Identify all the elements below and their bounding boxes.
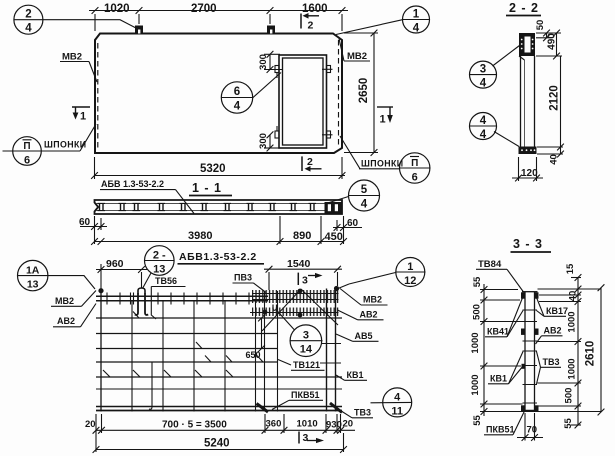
svg-text:3: 3 bbox=[303, 330, 309, 342]
svg-text:890: 890 bbox=[293, 230, 311, 242]
svg-text:2: 2 bbox=[308, 20, 314, 32]
svg-text:3: 3 bbox=[303, 432, 309, 444]
svg-text:1: 1 bbox=[380, 114, 386, 126]
svg-text:1А: 1А bbox=[26, 265, 40, 277]
svg-text:КВ1: КВ1 bbox=[490, 374, 507, 384]
svg-text:3 - 3: 3 - 3 bbox=[513, 237, 543, 251]
svg-text:2650: 2650 bbox=[358, 78, 370, 104]
svg-text:2 -: 2 - bbox=[153, 250, 166, 262]
svg-text:55: 55 bbox=[563, 418, 574, 429]
svg-text:50: 50 bbox=[535, 20, 546, 31]
svg-text:4: 4 bbox=[234, 101, 241, 113]
svg-text:120: 120 bbox=[521, 168, 538, 179]
svg-text:АБВ 1.3-53-2.2: АБВ 1.3-53-2.2 bbox=[101, 179, 164, 189]
svg-text:4: 4 bbox=[480, 115, 487, 127]
svg-text:13: 13 bbox=[27, 279, 39, 291]
svg-text:500: 500 bbox=[564, 388, 575, 404]
svg-text:14: 14 bbox=[300, 344, 313, 356]
svg-text:20: 20 bbox=[85, 419, 96, 430]
svg-text:360: 360 bbox=[266, 419, 282, 430]
svg-text:4: 4 bbox=[25, 23, 32, 35]
svg-text:1010: 1010 bbox=[297, 419, 318, 430]
svg-text:40: 40 bbox=[568, 291, 579, 302]
svg-text:АБВ1.3-53-2.2: АБВ1.3-53-2.2 bbox=[179, 251, 257, 263]
svg-text:40: 40 bbox=[549, 154, 560, 165]
svg-text:АВ2: АВ2 bbox=[57, 316, 75, 326]
svg-text:1600: 1600 bbox=[302, 3, 328, 15]
svg-text:3: 3 bbox=[480, 64, 486, 76]
svg-text:ТВ3: ТВ3 bbox=[543, 357, 560, 367]
svg-text:930: 930 bbox=[326, 420, 342, 431]
svg-text:4: 4 bbox=[480, 129, 487, 141]
svg-text:ТВ56: ТВ56 bbox=[155, 276, 177, 286]
svg-text:13: 13 bbox=[153, 264, 165, 276]
svg-text:300: 300 bbox=[258, 133, 269, 149]
svg-text:15: 15 bbox=[565, 263, 576, 274]
svg-text:55: 55 bbox=[472, 415, 483, 426]
svg-text:П: П bbox=[23, 141, 30, 152]
svg-text:МВ2: МВ2 bbox=[55, 296, 74, 306]
svg-text:700 · 5 = 3500: 700 · 5 = 3500 bbox=[162, 420, 227, 431]
svg-text:1000: 1000 bbox=[567, 358, 578, 379]
svg-text:4: 4 bbox=[413, 23, 420, 35]
svg-text:1000: 1000 bbox=[567, 311, 578, 332]
svg-text:ПКВ51: ПКВ51 bbox=[291, 390, 319, 400]
svg-text:4: 4 bbox=[361, 199, 368, 211]
svg-text:1: 1 bbox=[413, 9, 420, 21]
svg-text:АВ2: АВ2 bbox=[544, 326, 562, 336]
svg-text:55: 55 bbox=[472, 276, 483, 287]
svg-text:5240: 5240 bbox=[204, 438, 230, 450]
svg-text:ТВ84: ТВ84 bbox=[478, 259, 502, 270]
svg-text:КВ17: КВ17 bbox=[546, 306, 568, 316]
svg-text:960: 960 bbox=[106, 258, 124, 270]
svg-text:2610: 2610 bbox=[585, 341, 597, 367]
svg-text:МВ2: МВ2 bbox=[363, 295, 382, 305]
svg-text:АВ2: АВ2 bbox=[360, 310, 378, 320]
svg-text:4: 4 bbox=[394, 392, 401, 404]
svg-text:1000: 1000 bbox=[470, 374, 481, 395]
svg-text:4: 4 bbox=[480, 78, 487, 90]
svg-text:2 - 2: 2 - 2 bbox=[509, 1, 539, 15]
svg-text:3: 3 bbox=[302, 275, 308, 287]
svg-text:6: 6 bbox=[234, 86, 240, 98]
svg-text:1020: 1020 bbox=[104, 3, 130, 15]
svg-text:2700: 2700 bbox=[191, 3, 217, 15]
svg-text:1000: 1000 bbox=[470, 332, 481, 353]
svg-text:АВ5: АВ5 bbox=[355, 331, 373, 341]
svg-text:МВ2: МВ2 bbox=[62, 52, 82, 63]
svg-text:КВ41: КВ41 bbox=[487, 327, 509, 337]
svg-text:6: 6 bbox=[24, 155, 30, 167]
svg-text:2: 2 bbox=[307, 156, 313, 168]
svg-text:ШПОНКИ: ШПОНКИ bbox=[44, 140, 86, 150]
svg-text:МВ2: МВ2 bbox=[347, 51, 367, 62]
svg-text:300: 300 bbox=[258, 54, 269, 70]
svg-text:2: 2 bbox=[25, 9, 31, 21]
svg-text:6: 6 bbox=[412, 172, 418, 184]
svg-text:5320: 5320 bbox=[200, 163, 226, 175]
svg-text:ШПОНКИ: ШПОНКИ bbox=[361, 159, 403, 169]
svg-text:1: 1 bbox=[80, 111, 86, 123]
svg-text:КВ1: КВ1 bbox=[347, 370, 364, 380]
svg-text:2120: 2120 bbox=[549, 85, 561, 111]
svg-text:1: 1 bbox=[407, 261, 413, 273]
svg-text:20: 20 bbox=[343, 419, 354, 430]
svg-text:ПКВ51: ПКВ51 bbox=[486, 425, 514, 435]
svg-text:5: 5 bbox=[361, 184, 368, 196]
svg-text:500: 500 bbox=[472, 304, 483, 320]
svg-text:11: 11 bbox=[391, 406, 403, 418]
svg-text:1540: 1540 bbox=[287, 258, 311, 270]
svg-text:П: П bbox=[411, 158, 418, 169]
svg-text:3980: 3980 bbox=[188, 230, 212, 242]
svg-text:12: 12 bbox=[404, 275, 416, 287]
svg-text:ТВ3: ТВ3 bbox=[354, 408, 371, 418]
svg-text:450: 450 bbox=[325, 231, 343, 243]
svg-text:1 - 1: 1 - 1 bbox=[192, 181, 222, 195]
svg-text:ПВ3: ПВ3 bbox=[234, 273, 252, 283]
svg-text:ТВ121: ТВ121 bbox=[293, 360, 320, 370]
